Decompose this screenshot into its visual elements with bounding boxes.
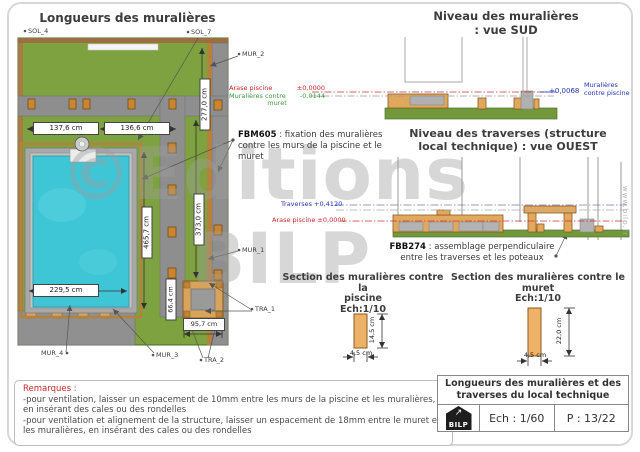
levels-sud-left: Arase piscine ±0,0000 Muralières contre … xyxy=(229,85,325,108)
ref-mur-2: MUR_2 xyxy=(242,50,264,58)
dim-section-piscine-w: 4,5 cm xyxy=(349,349,373,357)
sheet-title: Longueurs des muralières et des traverse… xyxy=(438,376,628,405)
vue-sud-drawing xyxy=(310,37,557,119)
ref-sol-4: SOL_4 xyxy=(28,27,48,35)
dim-section-muret-h: 22,0 cm xyxy=(555,314,563,348)
muralieres-muret-label2: muret xyxy=(267,100,287,108)
fbb274-line1: FBB274 : assemblage perpendiculaire xyxy=(386,242,558,253)
remarks-line1: -pour ventilation, laisser un espacement… xyxy=(23,395,444,416)
muralieres-piscine-value: +0,0068 xyxy=(549,87,579,95)
logo-arrow-icon: ↗ xyxy=(446,409,472,418)
website-url: www.bilp.fr xyxy=(621,186,629,236)
sheet-title-line1: Longueurs des muralières et des xyxy=(438,378,628,390)
remarks-heading: Remarques : xyxy=(23,384,444,395)
fbb274-line2: entre les traverses et les poteaux xyxy=(386,253,558,264)
traverses-level-label: Traverses +0,4120 xyxy=(281,200,342,208)
dim-465-7: 465,7 cm xyxy=(142,207,153,259)
muralieres-piscine-label-line1: Muralières xyxy=(584,81,630,89)
vue-sud-title-line1: Niveau des muralières xyxy=(400,9,612,23)
dim-137-6: 137,6 cm xyxy=(33,122,99,135)
dim-136-6: 136,6 cm xyxy=(104,122,170,135)
dim-66-4: 66,4 cm xyxy=(166,279,177,321)
fbm605-code: FBM605 xyxy=(238,130,277,140)
arase-ouest-label: Arase piscine ±0,0000 xyxy=(272,216,346,224)
plan-title: Longueurs des muralières xyxy=(25,11,230,25)
fbb274-code: FBB274 xyxy=(389,242,426,252)
muralieres-muret-value: -0,0144 xyxy=(300,93,325,101)
vue-ouest-drawing xyxy=(336,157,629,240)
dim-277-0: 277,0 cm xyxy=(200,79,211,131)
dim-229-5: 229,5 cm xyxy=(33,284,99,297)
muralieres-piscine-label: Muralières contre piscine xyxy=(584,81,630,97)
section-muret-title-line1: Section des muralières contre le xyxy=(450,273,626,284)
ref-tra-2: TRA_2 xyxy=(204,356,224,364)
fbb274-callout: FBB274 : assemblage perpendiculaire entr… xyxy=(386,242,558,263)
section-muret-title: Section des muralières contre le muret E… xyxy=(450,273,626,305)
fbm605-callout: FBM605 : fixation des muralières contre … xyxy=(238,130,396,163)
muralieres-piscine-label-line2: contre piscine xyxy=(584,89,630,97)
ref-mur-4: MUR_4 xyxy=(41,349,63,357)
section-muret-scale: Ech:1/10 xyxy=(450,294,626,305)
section-piscine-scale: Ech:1/10 xyxy=(282,305,444,316)
remarks-line2: -pour ventilation et alignement de la st… xyxy=(23,416,444,437)
title-block: Longueurs des muralières et des traverse… xyxy=(437,375,629,432)
dim-95-7: 95,7 cm xyxy=(183,318,225,331)
section-piscine-title-line1: Section des muralières contre la xyxy=(282,273,444,294)
dim-section-piscine-h: 14,5 cm xyxy=(368,313,376,347)
sheet-title-line2: traverses du local technique xyxy=(438,390,628,402)
bilp-logo: ↗ BILP xyxy=(446,406,472,430)
page-number-cell: P : 13/22 xyxy=(555,405,629,431)
remarks-box: Remarques : -pour ventilation, laisser u… xyxy=(14,380,453,446)
vue-ouest-title: Niveau des traverses (structure local te… xyxy=(394,127,622,153)
scale-cell: Ech : 1/60 xyxy=(480,405,555,431)
logo-cell: ↗ BILP xyxy=(438,405,480,431)
local-technique xyxy=(183,281,223,318)
section-piscine-title-line2: piscine xyxy=(282,294,444,305)
ref-mur-3: MUR_3 xyxy=(156,351,178,359)
dim-section-muret-w: 4,5 cm xyxy=(523,351,547,359)
section-piscine-title: Section des muralières contre la piscine… xyxy=(282,273,444,315)
ref-sol-7: SOL_7 xyxy=(191,28,211,36)
ref-tra-1: TRA_1 xyxy=(255,305,275,313)
title-block-row: ↗ BILP Ech : 1/60 P : 13/22 xyxy=(438,405,628,431)
vue-sud-title: Niveau des muralières : vue SUD xyxy=(400,9,612,37)
vue-sud-title-line2: : vue SUD xyxy=(400,23,612,37)
logo-word: BILP xyxy=(446,421,472,429)
fbb274-text: : assemblage perpendiculaire xyxy=(426,242,555,252)
dim-373-0: 373,0 cm xyxy=(194,194,205,246)
vue-ouest-title-line1: Niveau des traverses (structure xyxy=(394,127,622,140)
plan-sheet: ©Editions BILP www.bilp.fr Longueurs des… xyxy=(0,0,640,452)
vue-ouest-title-line2: local technique) : vue OUEST xyxy=(394,140,622,153)
ref-mur-1: MUR_1 xyxy=(242,246,264,254)
